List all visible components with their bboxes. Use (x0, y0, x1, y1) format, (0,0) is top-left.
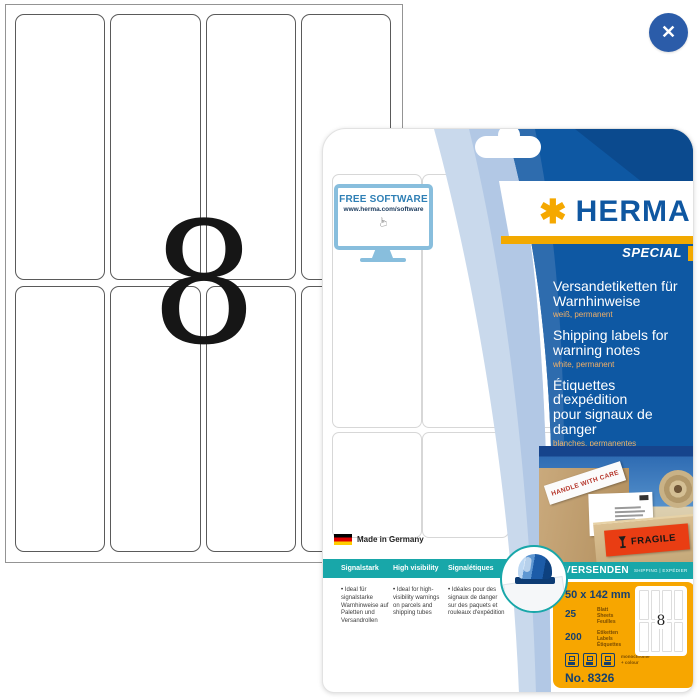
cardboard-tube (659, 470, 694, 508)
hang-hole-slot (475, 136, 541, 158)
unit-fr: Étiquettes (597, 642, 621, 648)
feature-text-fr: Idéales pour des signaux de danger sur d… (448, 587, 506, 626)
broken-glass-icon (617, 535, 627, 549)
label-count: 200 (565, 632, 582, 643)
sheet-label-cell (206, 286, 296, 552)
sheet-label-cell (206, 14, 296, 280)
accent-stripe (501, 236, 694, 244)
label-size: 50 x 142 mm (565, 589, 630, 601)
sheet-label-cell (110, 286, 200, 552)
close-icon: ✕ (661, 22, 676, 43)
feature-text-en: Ideal for high-visibility warnings on pa… (393, 587, 443, 626)
feature-header-de: Signalstark (341, 565, 393, 572)
category-bar: VERSENDEN SHIPPING | EXPÉDIER (555, 562, 694, 579)
subtitle-en: white, permanent (553, 360, 691, 369)
address-line (615, 514, 643, 517)
category-main: VERSENDEN (564, 565, 629, 576)
herma-asterisk-icon: ✱ (539, 195, 567, 228)
address-line (615, 506, 641, 509)
title-de: Warnhinweise (553, 294, 691, 309)
title-en: warning notes (553, 343, 691, 358)
title-de: Versandetiketten für (553, 279, 691, 294)
mini-count-text: 8 (655, 613, 668, 629)
sheet-count: 25 (565, 609, 576, 620)
special-accent-mark (688, 246, 693, 261)
feature-bullets: Ideal für signalstarke Warnhinweise auf … (341, 587, 506, 626)
spec-panel: 50 x 142 mm 25 Blatt Sheets Feuilles 200… (553, 582, 694, 688)
product-package: ✱ HERMA SPECIAL Versandetiketten für War… (322, 128, 694, 693)
feature-text-de: Ideal für signalstarke Warnhinweise auf … (341, 587, 389, 626)
free-software-url: www.herma.com/software (338, 206, 429, 213)
hand-cursor-icon: ☞ (376, 217, 390, 228)
article-number: No. 8326 (565, 671, 614, 685)
title-fr: Étiquettes d'expédition (553, 378, 691, 407)
feature-header-en: High visibility (393, 565, 448, 572)
free-software-callout: FREE SOFTWARE www.herma.com/software ☞ (334, 184, 433, 250)
herma-logo: ✱ HERMA (539, 195, 691, 228)
free-software-title: FREE SOFTWARE (338, 194, 429, 205)
monitor-base (360, 258, 406, 262)
germany-flag-icon (334, 534, 352, 545)
fragile-text: FRAGILE (630, 532, 676, 547)
made-in-text: Made in Germany (357, 535, 424, 544)
title-en: Shipping labels for (553, 328, 691, 343)
sheet-label-cell (15, 14, 105, 280)
copier-icon (601, 653, 615, 667)
title-fr: danger (553, 422, 691, 437)
feature-header-fr: Signalétiques (448, 565, 508, 572)
application-photo: HANDLE WITH CARE FRAGILE (539, 446, 694, 562)
inkjet-printer-icon (583, 653, 597, 667)
sheet-units: Blatt Sheets Feuilles (597, 607, 616, 625)
image-viewer: 8 ✱ HERMA SPECIAL Versande (0, 0, 700, 700)
category-sub: SHIPPING | EXPÉDIER (634, 568, 688, 573)
product-titles: Versandetiketten für Warnhinweise weiß, … (553, 279, 691, 457)
special-badge: SPECIAL (622, 245, 682, 260)
subtitle-de: weiß, permanent (553, 310, 691, 319)
features-bar: Signalstark High visibility Signalétique… (323, 559, 513, 578)
sheet-label-cell (110, 14, 200, 280)
stamp-mark (639, 495, 648, 500)
sheet-label-cell (15, 286, 105, 552)
close-button[interactable]: ✕ (649, 13, 688, 52)
laser-printer-icon (565, 653, 579, 667)
address-line (615, 510, 645, 513)
label-units: Etiketten Labels Étiquettes (597, 630, 621, 648)
print-note-line: + colour (621, 660, 650, 666)
made-in-germany: Made in Germany (334, 534, 424, 545)
brand-name: HERMA (576, 197, 691, 227)
beacon-light-icon (518, 554, 552, 579)
monitor-stand (372, 250, 393, 258)
unit-fr: Feuilles (597, 619, 616, 625)
beacon-badge (500, 545, 568, 613)
mini-sheet-count: 8 (635, 586, 687, 656)
title-fr: pour signaux de (553, 407, 691, 422)
